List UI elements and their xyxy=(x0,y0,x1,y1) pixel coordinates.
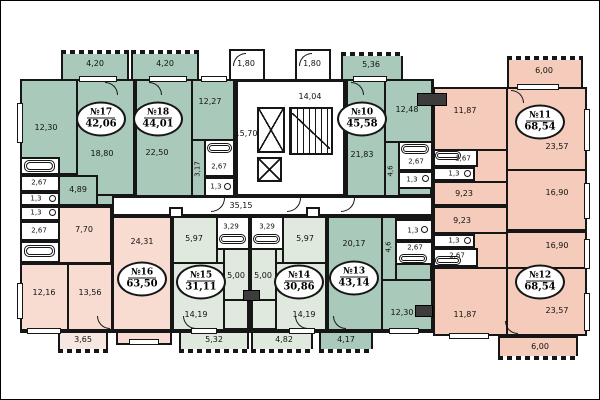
apt10-room-21-83 xyxy=(346,79,386,197)
apt14-room2-label: 5,97 xyxy=(296,235,314,243)
apt11-badge: №11 68,54 xyxy=(515,105,565,140)
apt10-room1-label: 21,83 xyxy=(351,151,374,159)
apt16-room1-label: 24,31 xyxy=(131,238,154,246)
apt11-bath-label: 2,67 xyxy=(455,156,471,163)
apt12-room4-label: 9,23 xyxy=(453,217,471,225)
apt13-number: №13 xyxy=(340,266,368,277)
sink-icon xyxy=(224,183,231,190)
apt11-room3-label: 16,90 xyxy=(546,189,569,197)
apt16-bath-label: 2,67 xyxy=(31,228,47,235)
vent-shaft xyxy=(415,305,433,317)
apt11-wc-label: 1,3 xyxy=(448,171,459,178)
apt18-number: №18 xyxy=(144,107,172,118)
window xyxy=(79,76,117,82)
apt16-hall-label: 7,70 xyxy=(75,226,93,234)
apt15-room1-label: 14,19 xyxy=(185,311,208,319)
apt14-balcony-label: 4,82 xyxy=(275,336,293,344)
apt16-balcony-railing xyxy=(58,349,108,353)
apt17-balcony-railing xyxy=(61,50,129,54)
apt11-balcony-railing xyxy=(507,56,583,60)
apt12-room3-label: 16,90 xyxy=(546,242,569,250)
apt18-hall-label: 3,17 xyxy=(195,161,202,177)
window xyxy=(149,76,187,82)
apt10-hall-label: 4,6 xyxy=(388,165,395,176)
window xyxy=(289,328,315,334)
apt13-balcony-railing xyxy=(319,349,373,353)
apt17-badge: №17 42,06 xyxy=(76,102,126,137)
apt16-badge: №16 63,50 xyxy=(117,262,167,297)
apt18-balcony-railing xyxy=(131,50,199,54)
sink-icon xyxy=(464,237,471,244)
apt12-bath-label: 2,67 xyxy=(449,253,465,260)
apt15-area: 31,11 xyxy=(185,282,216,294)
apt10-area: 45,58 xyxy=(346,119,377,131)
apt16-number: №16 xyxy=(128,267,156,278)
bathtub-icon xyxy=(24,160,55,172)
apt13-wc-label: 1,3 xyxy=(407,228,418,235)
corridor-shaft-right xyxy=(306,207,320,218)
apt12-wc-label: 1,3 xyxy=(448,238,459,245)
bathtub-icon xyxy=(207,143,232,153)
apt15-balcony-label: 5,32 xyxy=(205,336,223,344)
apt14-room1-label: 14,19 xyxy=(293,311,316,319)
apt18-wc-label: 1,3 xyxy=(210,184,221,191)
apt13-balcony-label: 4,17 xyxy=(337,336,355,344)
apt10-bath-label: 2,67 xyxy=(408,159,424,166)
entry-left-label: 1,80 xyxy=(237,60,255,68)
apt16-area: 63,50 xyxy=(126,279,157,291)
apt16-balcony-label: 3,65 xyxy=(74,336,92,344)
window xyxy=(17,103,23,143)
apt14-bath-label: 3,29 xyxy=(259,224,275,231)
apt18-room-22-50 xyxy=(135,79,193,197)
apt12-number: №12 xyxy=(526,270,554,281)
sink-icon xyxy=(49,195,56,202)
sink-icon xyxy=(422,175,429,182)
window xyxy=(129,339,159,345)
apt12-balcony-railing xyxy=(498,356,578,360)
apt14-badge: №14 30,86 xyxy=(274,265,324,300)
apt13-hall-label: 4,6 xyxy=(386,241,393,252)
apt11-room2-label: 23,57 xyxy=(546,143,569,151)
apt17-room2-label: 18,80 xyxy=(91,150,114,158)
apt15-room2-label: 5,97 xyxy=(185,235,203,243)
apt15-balcony-railing xyxy=(179,349,249,353)
apt12-room1-label: 11,87 xyxy=(454,311,477,319)
apt15-badge: №15 31,11 xyxy=(176,265,226,300)
bathtub-icon xyxy=(399,254,427,263)
bathtub-icon xyxy=(253,234,280,244)
apt13-bath-label: 2,67 xyxy=(407,245,423,252)
vent-shaft xyxy=(243,290,260,301)
apt17-area: 42,06 xyxy=(85,119,116,131)
apt11-area: 68,54 xyxy=(524,122,555,134)
apt12-badge: №12 68,54 xyxy=(515,265,565,300)
apt17-bath-label: 2,67 xyxy=(31,180,47,187)
apt11-room-16-90 xyxy=(506,169,587,231)
apt18-balcony-label: 4,20 xyxy=(156,60,174,68)
apt13-room1-label: 20,17 xyxy=(343,240,366,248)
bathtub-icon xyxy=(219,234,246,244)
apt16-room-12-16 xyxy=(20,263,69,331)
apt15-bath-label: 3,29 xyxy=(223,224,239,231)
window xyxy=(584,183,590,219)
window xyxy=(389,328,419,334)
window xyxy=(353,76,387,82)
apt16-room3-label: 13,56 xyxy=(79,289,102,297)
window xyxy=(201,76,227,82)
apt15-number: №15 xyxy=(187,270,215,281)
window xyxy=(449,333,489,339)
apt17-number: №17 xyxy=(87,107,115,118)
apt14-number: №14 xyxy=(285,270,313,281)
apt18-badge: №18 44,01 xyxy=(133,102,183,137)
corridor-shaft-left xyxy=(169,207,183,218)
apt17-wc-label: 1,3 xyxy=(30,196,41,203)
apt13-room2-label: 12,30 xyxy=(391,309,414,317)
apt11-room4-label: 9,23 xyxy=(455,190,473,198)
apt10-wc-label: 1,3 xyxy=(406,177,417,184)
apt18-room-12-27 xyxy=(191,79,235,141)
apt14-bath xyxy=(250,216,284,250)
apt10-number: №10 xyxy=(348,107,376,118)
window xyxy=(584,239,590,269)
apt11-room1-label: 11,87 xyxy=(454,107,477,115)
staircase xyxy=(289,107,333,155)
stairwell-label: 14,04 xyxy=(299,93,322,101)
elevator-small xyxy=(257,157,282,182)
apt15-bath xyxy=(216,216,250,250)
apt13-badge: №13 43,14 xyxy=(329,261,379,296)
apt12-area: 68,54 xyxy=(524,282,555,294)
bathtub-icon xyxy=(401,144,429,154)
apt11-number: №11 xyxy=(526,110,554,121)
apt17-room1-label: 12,30 xyxy=(35,124,58,132)
elevator-hall-label: 15,70 xyxy=(235,130,258,138)
apt10-badge: №10 45,58 xyxy=(337,102,387,137)
apt10-room2-label: 12,48 xyxy=(396,106,419,114)
sink-icon xyxy=(49,209,56,216)
apt11-balcony-label: 6,00 xyxy=(535,67,553,75)
apt10-balcony-label: 5,36 xyxy=(362,61,380,69)
sink-icon xyxy=(421,226,428,233)
apt14-balcony-railing xyxy=(251,349,313,353)
apt16-wc-label: 1,3 xyxy=(30,210,41,217)
corridor xyxy=(112,196,433,216)
apt15-kitchen-label: 5,00 xyxy=(227,272,245,280)
window xyxy=(517,84,559,90)
window xyxy=(584,293,590,331)
apt16-hall xyxy=(58,206,112,264)
apt17-hall-label: 4,89 xyxy=(69,186,87,194)
apt18-bath-label: 2,67 xyxy=(211,164,227,171)
apt18-room1-label: 22,50 xyxy=(146,149,169,157)
apt14-area: 30,86 xyxy=(283,282,314,294)
window xyxy=(17,283,23,319)
apt12-room-11-87 xyxy=(433,267,508,336)
elevator-large xyxy=(257,107,285,153)
apt18-area: 44,01 xyxy=(142,119,173,131)
apt12-balcony-label: 6,00 xyxy=(531,343,549,351)
apt18-room2-label: 12,27 xyxy=(199,98,222,106)
apt12-room-16-90 xyxy=(506,231,587,269)
vent-shaft xyxy=(417,93,447,106)
apt12-room2-label: 23,57 xyxy=(546,307,569,315)
apt17-balcony-label: 4,20 xyxy=(86,60,104,68)
apt10-balcony-railing xyxy=(341,52,403,56)
apt13-area: 43,14 xyxy=(338,278,369,290)
floor-plan: №17 42,06 №18 44,01 №10 45,58 №11 68,54 … xyxy=(0,0,600,400)
window xyxy=(584,109,590,151)
apt14-kitchen-label: 5,00 xyxy=(254,272,272,280)
bathtub-icon xyxy=(24,245,55,257)
apt16-room2-label: 12,16 xyxy=(33,289,56,297)
window xyxy=(27,328,61,334)
entry-right-label: 1,80 xyxy=(303,60,321,68)
corridor-label: 35,15 xyxy=(230,202,253,210)
sink-icon xyxy=(464,170,471,177)
